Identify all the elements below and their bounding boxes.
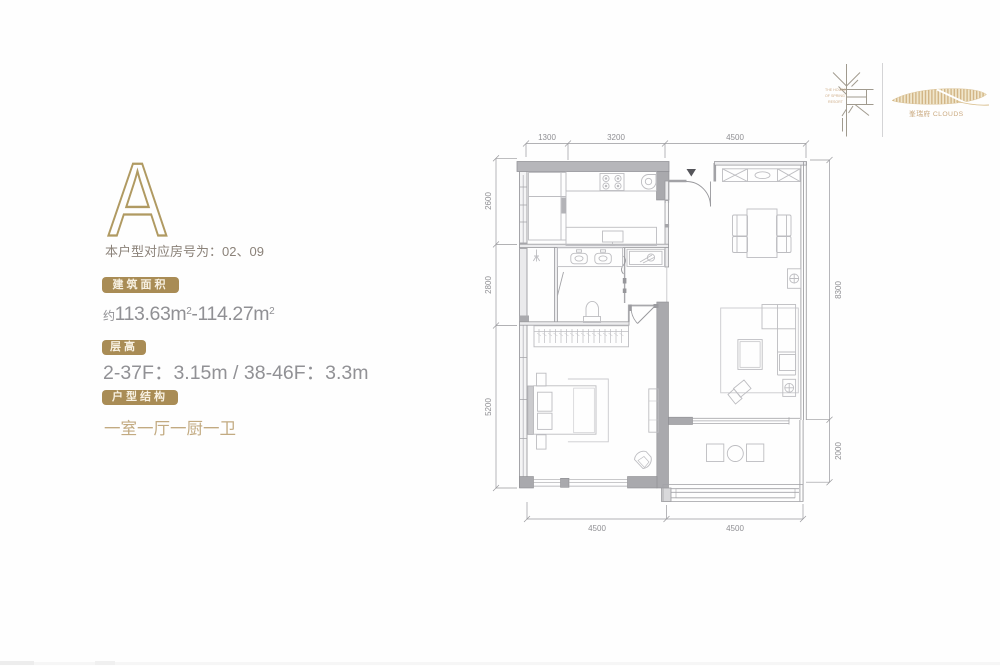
svg-text:2800: 2800 — [484, 276, 493, 294]
svg-text:5200: 5200 — [484, 398, 493, 416]
svg-text:4500: 4500 — [726, 524, 744, 533]
svg-text:4500: 4500 — [588, 524, 606, 533]
svg-text:3200: 3200 — [607, 133, 625, 142]
svg-text:4500: 4500 — [726, 133, 744, 142]
svg-text:8300: 8300 — [834, 281, 843, 299]
svg-text:2000: 2000 — [834, 442, 843, 460]
svg-text:1300: 1300 — [538, 133, 556, 142]
svg-text:2600: 2600 — [484, 192, 493, 210]
